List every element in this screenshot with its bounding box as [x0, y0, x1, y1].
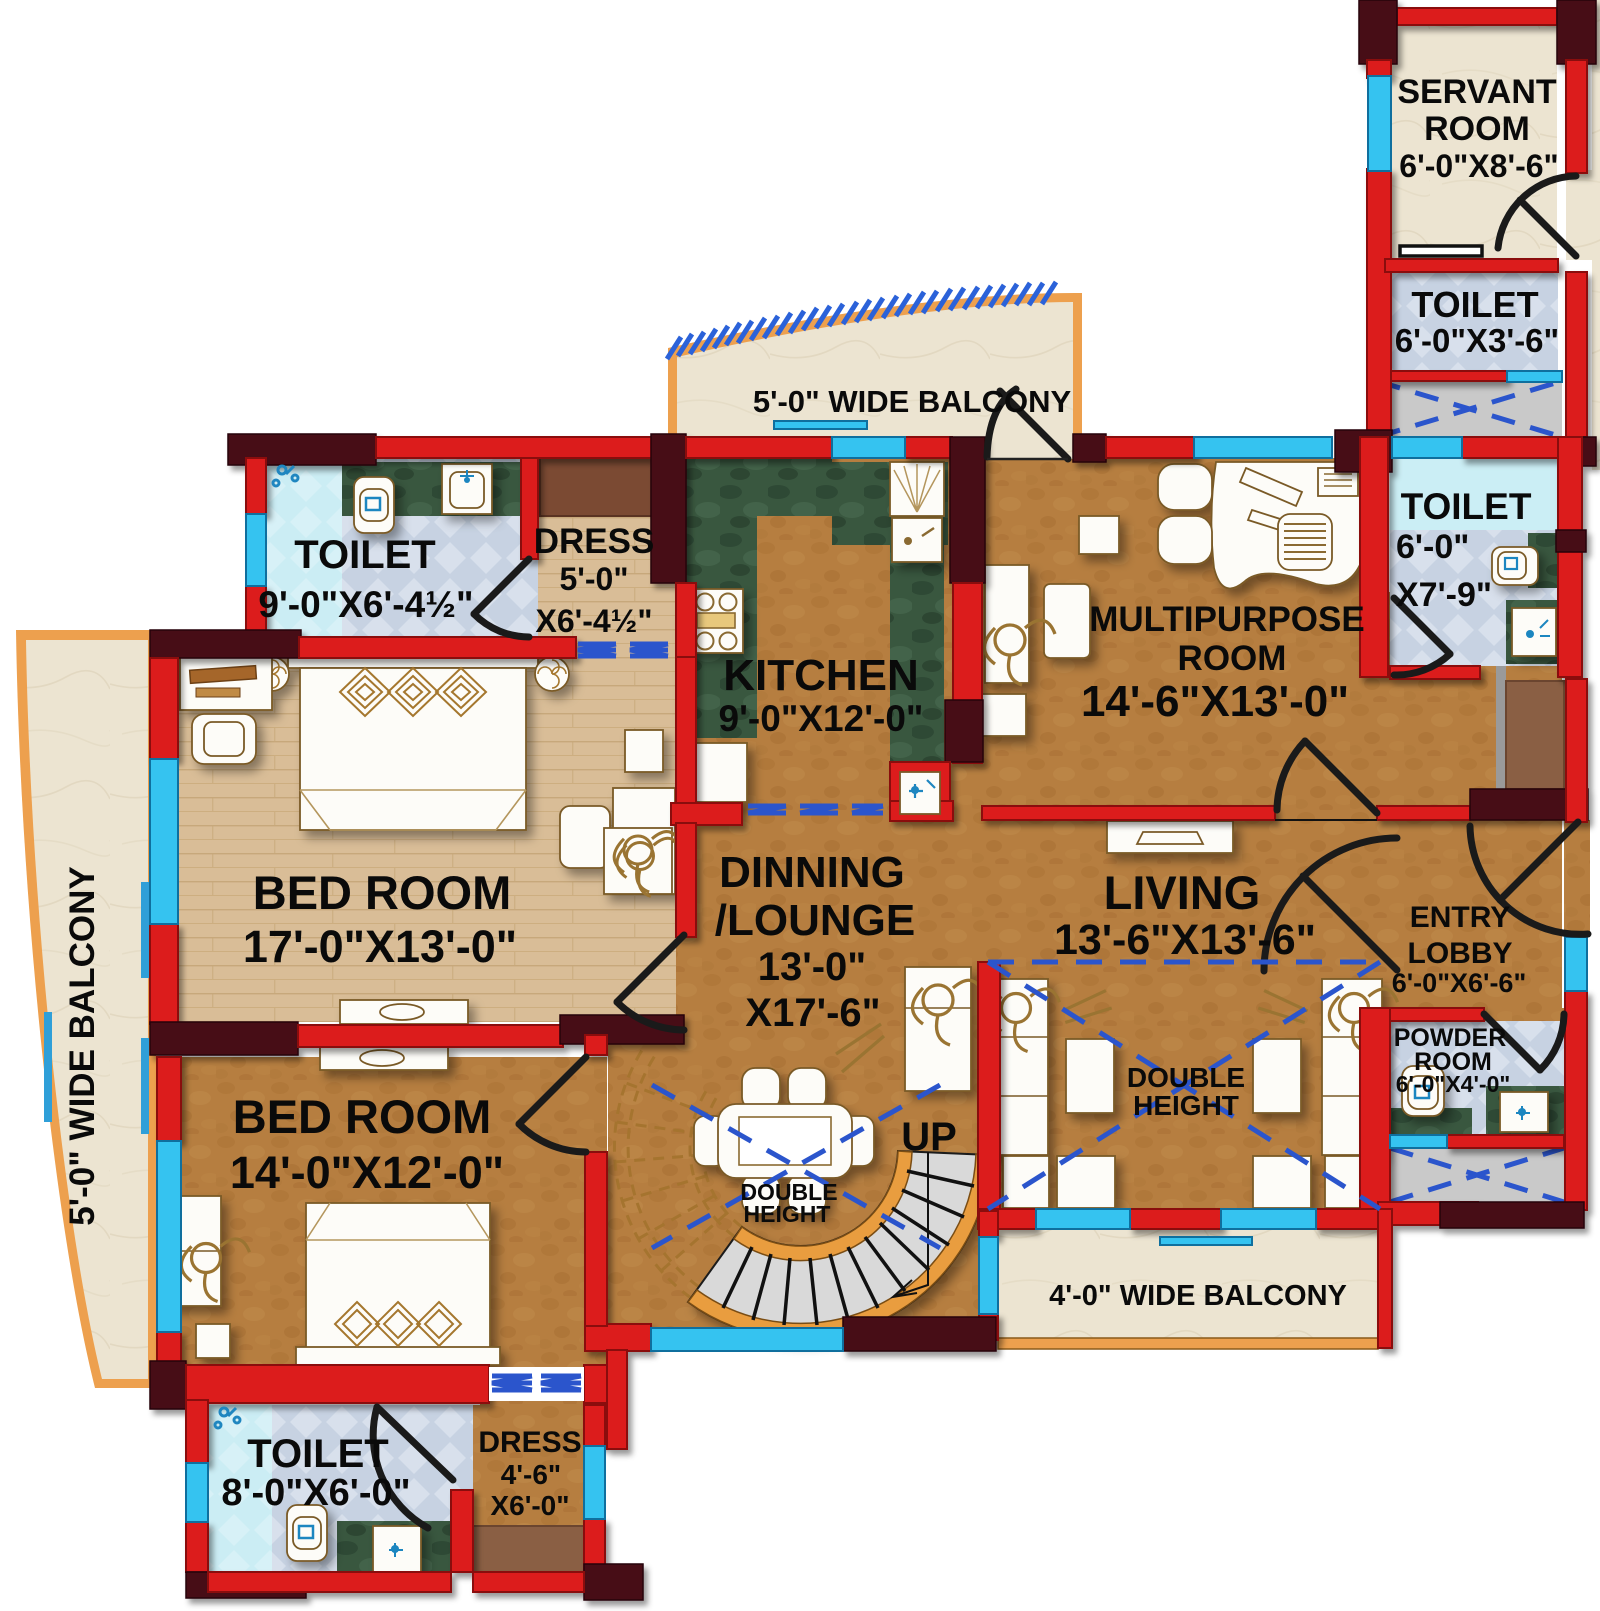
svg-text:6'-0"X6'-6": 6'-0"X6'-6": [1392, 968, 1527, 998]
svg-text:6'-0"X3'-6": 6'-0"X3'-6": [1395, 322, 1559, 359]
svg-text:4'-6": 4'-6": [501, 1459, 561, 1490]
svg-text:UP: UP: [901, 1115, 957, 1159]
svg-text:6'-0"X8'-6": 6'-0"X8'-6": [1399, 148, 1558, 184]
svg-text:17'-0"X13'-0": 17'-0"X13'-0": [243, 921, 517, 972]
svg-text:13'-0": 13'-0": [758, 945, 867, 989]
svg-text:5'-0" WIDE BALCONY: 5'-0" WIDE BALCONY: [63, 866, 102, 1225]
svg-text:5'-0": 5'-0": [559, 561, 628, 597]
svg-text:6'-0"X4'-0": 6'-0"X4'-0": [1396, 1071, 1511, 1097]
svg-text:14'-6"X13'-0": 14'-6"X13'-0": [1081, 677, 1349, 726]
svg-text:DINNING: DINNING: [719, 848, 905, 897]
svg-text:14'-0"X12'-0": 14'-0"X12'-0": [230, 1147, 504, 1198]
svg-text:TOILET: TOILET: [1401, 486, 1532, 527]
svg-text:LOBBY: LOBBY: [1408, 937, 1513, 970]
svg-text:MULTIPURPOSE: MULTIPURPOSE: [1089, 600, 1364, 639]
svg-text:TOILET: TOILET: [1411, 284, 1538, 325]
svg-text:X6'-0": X6'-0": [490, 1490, 569, 1521]
svg-text:13'-6"X13'-6": 13'-6"X13'-6": [1054, 916, 1316, 964]
svg-text:ROOM: ROOM: [1178, 639, 1287, 678]
svg-text:X6'-4½": X6'-4½": [535, 603, 652, 639]
svg-text:HEIGHT: HEIGHT: [744, 1201, 831, 1227]
svg-text:BED ROOM: BED ROOM: [233, 1090, 492, 1143]
svg-text:X7'-9": X7'-9": [1396, 576, 1492, 614]
svg-text:5'-0" WIDE BALCONY: 5'-0" WIDE BALCONY: [753, 384, 1072, 419]
svg-text:TOILET: TOILET: [294, 533, 435, 577]
svg-text:SERVANT: SERVANT: [1397, 73, 1557, 111]
svg-text:TOILET: TOILET: [247, 1432, 388, 1476]
svg-text:DOUBLE: DOUBLE: [1127, 1062, 1245, 1093]
svg-text:KITCHEN: KITCHEN: [723, 651, 919, 700]
svg-text:X17'-6": X17'-6": [745, 991, 880, 1035]
svg-text:ENTRY: ENTRY: [1410, 901, 1511, 934]
svg-text:DRESS: DRESS: [534, 522, 655, 561]
svg-text:HEIGHT: HEIGHT: [1133, 1090, 1239, 1121]
svg-text:9'-0"X12'-0": 9'-0"X12'-0": [719, 698, 924, 739]
svg-text:8'-0"X6'-0": 8'-0"X6'-0": [221, 1472, 410, 1514]
svg-text:ROOM: ROOM: [1424, 110, 1530, 148]
svg-text:BED ROOM: BED ROOM: [253, 866, 512, 919]
svg-text:6'-0": 6'-0": [1396, 528, 1469, 566]
svg-text:4'-0" WIDE BALCONY: 4'-0" WIDE BALCONY: [1049, 1280, 1347, 1312]
svg-text:DRESS: DRESS: [478, 1426, 581, 1459]
svg-text:LIVING: LIVING: [1104, 866, 1261, 919]
svg-text:9'-0"X6'-4½": 9'-0"X6'-4½": [258, 584, 473, 625]
svg-text:/LOUNGE: /LOUNGE: [715, 896, 915, 945]
